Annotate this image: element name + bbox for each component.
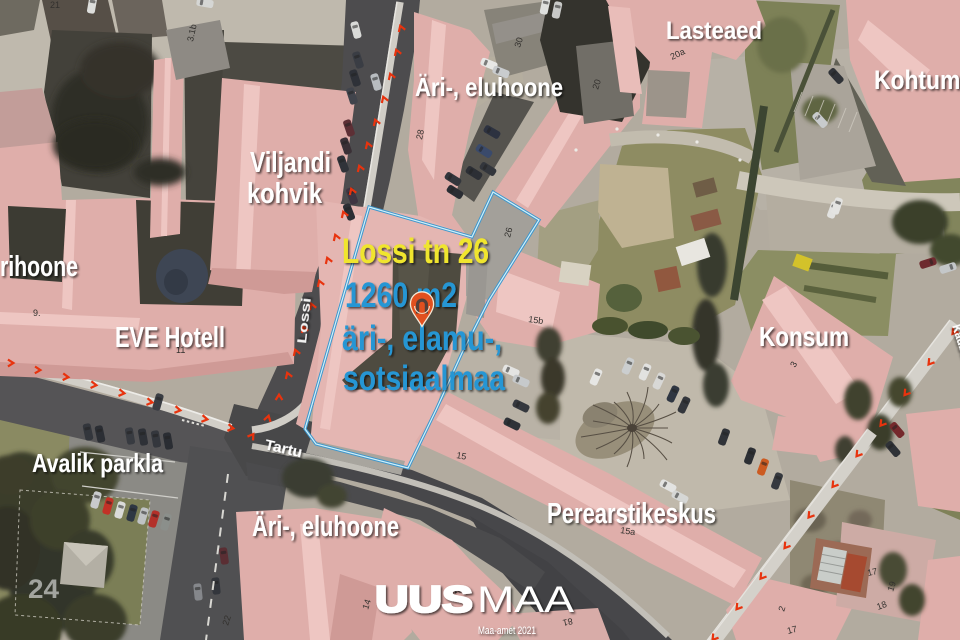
svg-text:kohvik: kohvik bbox=[247, 178, 323, 210]
svg-text:Kohtumaja: Kohtumaja bbox=[874, 65, 960, 95]
svg-text:Perearstikeskus: Perearstikeskus bbox=[547, 498, 716, 530]
svg-text:Viljandi: Viljandi bbox=[250, 147, 331, 179]
svg-text:24: 24 bbox=[28, 574, 59, 604]
svg-text:Avalik parkla: Avalik parkla bbox=[32, 448, 163, 478]
svg-text:9.: 9. bbox=[33, 308, 41, 318]
svg-text:Maa-amet 2021: Maa-amet 2021 bbox=[478, 625, 536, 637]
svg-text:EVE Hotell: EVE Hotell bbox=[115, 322, 225, 354]
svg-text:1260 m2: 1260 m2 bbox=[345, 276, 457, 315]
svg-text:Äri-, eluhoone: Äri-, eluhoone bbox=[415, 72, 563, 102]
svg-text:rihoone: rihoone bbox=[0, 251, 78, 283]
svg-text:UUS: UUS bbox=[375, 579, 473, 620]
svg-text:15: 15 bbox=[456, 450, 468, 462]
svg-text:21: 21 bbox=[50, 0, 60, 10]
svg-text:sotsiaalmaa: sotsiaalmaa bbox=[343, 359, 505, 398]
svg-text:Lasteaed: Lasteaed bbox=[666, 17, 762, 45]
svg-text:15b: 15b bbox=[528, 314, 544, 326]
svg-text:Lossi tn 26: Lossi tn 26 bbox=[342, 232, 489, 271]
svg-text:Äri-, eluhoone: Äri-, eluhoone bbox=[252, 510, 399, 543]
svg-text:17: 17 bbox=[866, 566, 878, 578]
svg-text:Konsum: Konsum bbox=[759, 321, 849, 352]
svg-text:28: 28 bbox=[414, 129, 426, 141]
svg-text:MAA: MAA bbox=[477, 579, 574, 620]
